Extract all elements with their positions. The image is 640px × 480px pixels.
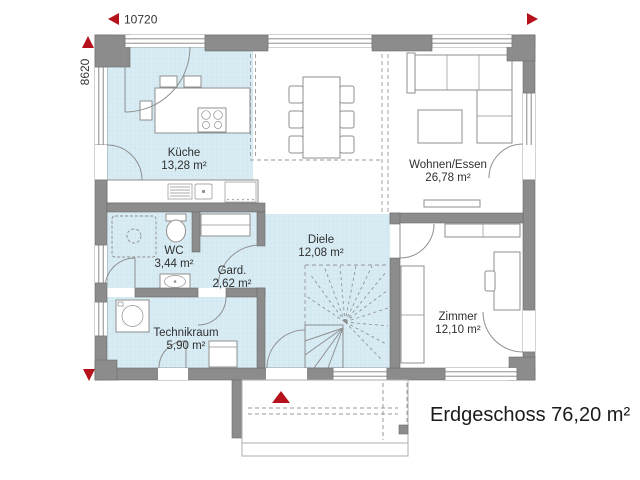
dim-arrow-right-icon [527,13,538,25]
floor-total-label: Erdgeschoss 76,20 m² [430,404,630,426]
toilet-icon [166,214,186,242]
window-kitchen-left [95,67,107,145]
room-name: Gard. [218,265,247,277]
chair-icon [289,136,303,153]
window-wc-left [95,245,107,283]
door-opening-kitchen-left [95,145,107,180]
chair-icon [289,111,303,128]
dim-arrow-left-icon [108,13,119,25]
chair-icon [340,136,354,153]
room-name: Diele [308,234,334,246]
dim-arrow-down-icon [83,369,95,381]
zimmer-furniture [401,224,520,363]
window-technik-left [95,302,107,336]
chair-icon [184,76,201,87]
door-opening-living-right [523,145,535,180]
wall-pier [372,35,432,51]
chair-icon [289,86,303,103]
room-name: Zimmer [439,311,478,323]
room-name: Technikraum [153,327,218,339]
room-name: Küche [168,147,201,159]
door-opening-technik-bottom [158,368,188,380]
wardrobe [445,224,520,237]
dining-table [303,77,340,158]
privacy-wall [232,380,242,438]
bed [401,266,424,363]
window-living-right [523,93,535,145]
desk-chair [485,271,495,291]
floorplan-svg: 10720 8620 Küche 13,28 m² Wohnen/Essen 2… [0,0,640,480]
entrance-arrow-icon [272,391,290,403]
kitchen-counter [107,180,258,203]
chair-icon [340,86,354,103]
window-living-top [432,35,512,47]
garderobe-furniture [201,214,250,236]
dim-arrow-up-icon [82,36,94,48]
window-kitchen-top [125,35,205,47]
room-label-garderobe: Gard. 2,62 m² [213,265,252,290]
washing-machine-icon [116,300,149,332]
room-label-zimmer: Zimmer 12,10 m² [435,311,481,336]
chair-icon [340,111,354,128]
room-area: 13,28 m² [161,160,207,172]
desk [494,252,520,310]
dim-width-label: 10720 [124,13,158,27]
dining-furniture [289,77,354,158]
chair-icon [160,76,177,87]
window-zimmer-bottom [445,368,517,380]
door-swing-living-exterior [489,144,523,178]
door-swing-zimmer-exterior [483,312,523,352]
sofa [415,55,512,90]
terrace-step [242,443,408,456]
room-name: Wohnen/Essen [409,159,487,171]
room-area: 26,78 m² [425,172,471,184]
door-swing-zimmer-inner [400,224,434,258]
window-diele-bottom [333,368,387,380]
sofa-armrest [407,53,415,93]
sideboard [424,200,480,207]
entrance-door-opening [266,368,307,380]
window-dining-top [268,35,372,47]
room-area: 3,44 m² [155,258,194,270]
room-label-wohnen: Wohnen/Essen 26,78 m² [409,159,487,184]
sofa-chaise [477,90,512,143]
technik-unit [209,341,237,367]
room-area: 5,90 m² [167,340,206,352]
washbasin-icon [160,274,190,289]
room-area: 12,10 m² [435,324,481,336]
terrace-post [399,425,408,434]
room-area: 2,62 m² [213,278,252,290]
room-name: WC [164,245,183,257]
terrace [232,380,408,456]
cooktop-icon [198,108,226,132]
room-area: 12,08 m² [298,247,344,259]
corner-pier [95,360,117,380]
wall-pier [205,35,268,51]
coffee-table [418,110,462,143]
room-label-kueche: Küche 13,28 m² [161,147,207,172]
chair-icon [140,101,152,120]
dim-height-label: 8620 [78,58,92,85]
door-opening-zimmer-right [523,310,535,352]
